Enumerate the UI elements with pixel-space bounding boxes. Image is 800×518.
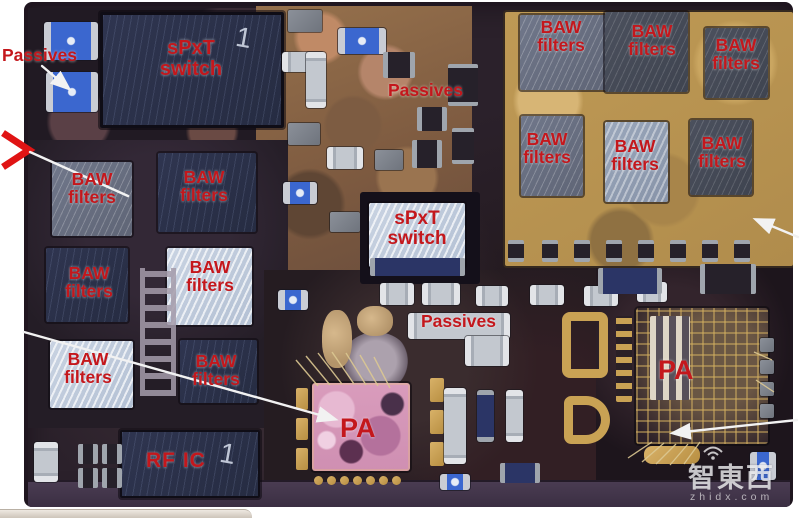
passive-component bbox=[102, 444, 122, 464]
watermark-logo: 智東西 bbox=[688, 456, 775, 495]
substrate-ladder-structure bbox=[140, 268, 176, 396]
label-baw-filters: BAW filters bbox=[527, 18, 595, 54]
annotated-module-photo: Passives Passives Passives sPxT switch s… bbox=[0, 0, 800, 518]
label-baw-filters: BAW filters bbox=[176, 258, 244, 294]
label-spxt-switch-1: sPxT switch bbox=[150, 38, 232, 80]
passive-component bbox=[574, 240, 590, 262]
passive-component bbox=[598, 268, 662, 294]
label-baw-filters: BAW filters bbox=[170, 168, 238, 204]
passive-component bbox=[46, 72, 98, 112]
passive-component bbox=[700, 264, 756, 294]
passive-component bbox=[278, 290, 308, 310]
gold-trace-inductor bbox=[564, 396, 610, 444]
passive-component bbox=[306, 52, 326, 108]
passive-component bbox=[375, 150, 403, 170]
passive-component bbox=[606, 240, 622, 262]
label-baw-filters: BAW filters bbox=[55, 264, 123, 300]
label-baw-filters: BAW filters bbox=[54, 350, 122, 386]
gold-pad bbox=[366, 476, 375, 485]
passive-component bbox=[383, 52, 415, 78]
passive-component bbox=[760, 382, 774, 396]
passive-component bbox=[327, 147, 363, 169]
passive-component bbox=[670, 240, 686, 262]
label-spxt-switch-2: sPxT switch bbox=[377, 209, 457, 249]
next-image-edge bbox=[0, 509, 252, 518]
gold-pad bbox=[327, 476, 336, 485]
passive-component bbox=[422, 283, 460, 305]
label-passives-topcenter: Passives bbox=[388, 81, 463, 99]
passive-component bbox=[530, 285, 564, 305]
passive-component bbox=[288, 123, 320, 145]
substrate-patch bbox=[357, 306, 393, 336]
passive-component bbox=[370, 258, 465, 276]
label-baw-filters: BAW filters bbox=[688, 134, 756, 170]
passive-component bbox=[477, 390, 494, 442]
passive-component bbox=[338, 28, 386, 54]
gold-pad bbox=[430, 442, 444, 466]
label-baw-filters: BAW filters bbox=[513, 130, 581, 166]
label-baw-filters: BAW filters bbox=[58, 170, 126, 206]
passive-component bbox=[760, 338, 774, 352]
passive-component bbox=[283, 182, 317, 204]
passive-component bbox=[417, 107, 447, 131]
label-baw-filters: BAW filters bbox=[702, 36, 770, 72]
gold-pad bbox=[296, 388, 308, 410]
passive-component bbox=[34, 442, 58, 482]
substrate-patch bbox=[322, 310, 352, 368]
passive-component bbox=[102, 468, 122, 488]
passive-component bbox=[734, 240, 750, 262]
passive-component bbox=[542, 240, 558, 262]
gold-pad bbox=[430, 410, 444, 434]
passive-component bbox=[760, 360, 774, 374]
solder-blob bbox=[342, 332, 410, 390]
passive-component bbox=[452, 128, 474, 164]
gold-pad bbox=[353, 476, 362, 485]
label-rf-ic: RF IC bbox=[146, 450, 206, 472]
passive-component bbox=[465, 336, 509, 366]
label-baw-filters: BAW filters bbox=[601, 137, 669, 173]
label-passives-center: Passives bbox=[421, 312, 496, 330]
watermark-site: zhidx.com bbox=[690, 491, 773, 503]
passive-component bbox=[440, 474, 470, 490]
gold-pad bbox=[296, 418, 308, 440]
passive-component bbox=[760, 404, 774, 418]
gold-pad bbox=[392, 476, 401, 485]
gold-trace-inductor bbox=[562, 312, 608, 378]
gold-pad bbox=[379, 476, 388, 485]
label-baw-filters: BAW filters bbox=[618, 22, 686, 58]
passive-component bbox=[288, 10, 322, 32]
gold-pad bbox=[430, 378, 444, 402]
gold-pad bbox=[340, 476, 349, 485]
passive-component bbox=[78, 444, 98, 464]
gold-pad bbox=[296, 448, 308, 470]
passive-component bbox=[500, 463, 540, 483]
passive-component bbox=[702, 240, 718, 262]
passive-component bbox=[638, 240, 654, 262]
passive-component bbox=[506, 390, 523, 442]
gold-pad bbox=[314, 476, 323, 485]
passive-component bbox=[330, 212, 360, 232]
passive-component bbox=[476, 286, 508, 306]
label-baw-filters: BAW filters bbox=[182, 352, 250, 388]
passive-component bbox=[78, 468, 98, 488]
gold-pad-array bbox=[616, 316, 632, 402]
passive-component bbox=[444, 388, 466, 464]
label-pa-right: PA bbox=[658, 356, 694, 384]
passive-component bbox=[412, 140, 442, 168]
passive-component bbox=[380, 283, 414, 305]
label-pa-center: PA bbox=[340, 414, 376, 442]
label-passives-topleft: Passives bbox=[2, 46, 77, 64]
passive-component bbox=[508, 240, 524, 262]
